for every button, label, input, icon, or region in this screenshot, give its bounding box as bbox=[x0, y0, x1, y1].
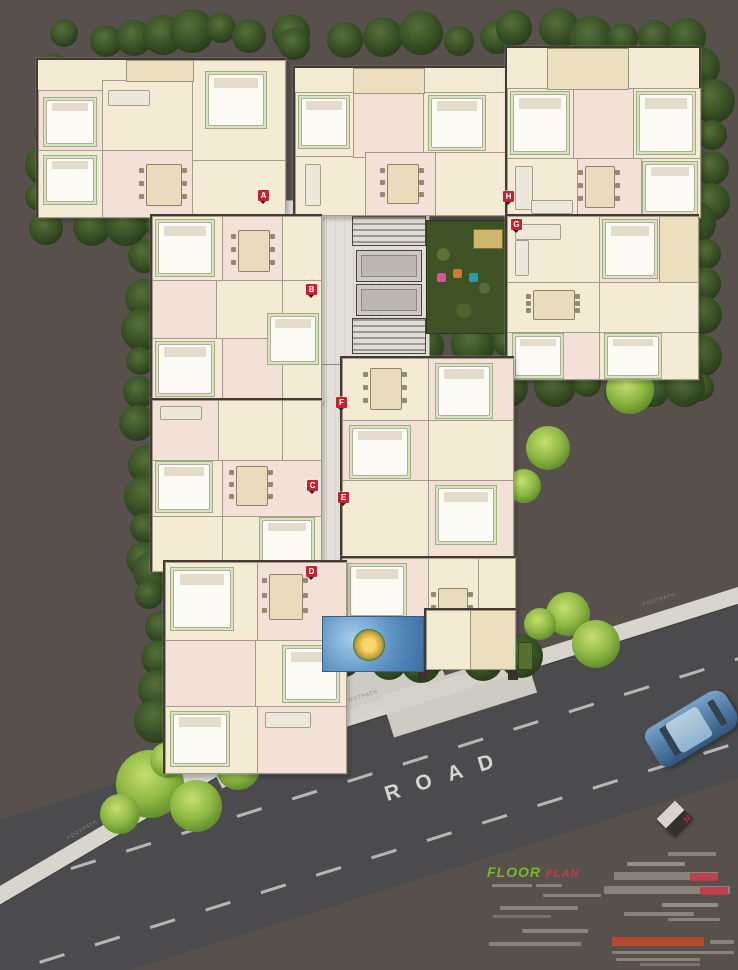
chair-icon bbox=[578, 183, 583, 188]
fine-print-text bbox=[522, 929, 588, 933]
block-marker-h: H bbox=[503, 191, 514, 202]
chair-icon bbox=[262, 593, 267, 598]
bed-icon bbox=[607, 336, 659, 376]
tree-icon bbox=[496, 10, 532, 46]
dining-table-icon bbox=[236, 466, 268, 506]
tree-icon bbox=[100, 794, 140, 834]
chair-icon bbox=[231, 247, 236, 252]
courtyard-planter bbox=[473, 229, 503, 249]
chair-icon bbox=[363, 398, 368, 403]
road-label: ROAD bbox=[382, 745, 513, 807]
bed-icon bbox=[438, 488, 494, 542]
footpath-label: FOOTPATH bbox=[642, 592, 677, 608]
bed-icon bbox=[46, 100, 94, 144]
chair-icon bbox=[182, 168, 187, 173]
caption-floor: FLOOR bbox=[487, 864, 541, 880]
apartment-block-3 bbox=[505, 46, 701, 218]
dining-table-icon bbox=[238, 230, 270, 272]
bed-icon bbox=[350, 566, 404, 616]
chair-icon bbox=[303, 608, 308, 613]
tree-icon bbox=[206, 13, 236, 43]
fine-print-text bbox=[493, 915, 551, 918]
fine-print-text bbox=[612, 951, 734, 954]
tree-icon bbox=[524, 608, 556, 640]
tree-icon bbox=[363, 17, 403, 57]
tree-icon bbox=[232, 19, 266, 53]
tree-icon bbox=[399, 11, 443, 55]
room bbox=[152, 280, 218, 340]
chair-icon bbox=[270, 247, 275, 252]
room bbox=[342, 480, 430, 562]
chair-icon bbox=[526, 308, 531, 313]
sofa-icon bbox=[531, 200, 573, 214]
lift-1 bbox=[356, 250, 422, 282]
chair-icon bbox=[262, 608, 267, 613]
tree-icon bbox=[327, 22, 363, 58]
tree-icon bbox=[572, 620, 620, 668]
chair-icon bbox=[468, 592, 473, 597]
apartment-block-4 bbox=[505, 214, 699, 380]
tree-icon bbox=[278, 28, 310, 60]
chair-icon bbox=[419, 192, 424, 197]
sofa-icon bbox=[265, 712, 311, 728]
chair-icon bbox=[575, 294, 580, 299]
chair-icon bbox=[268, 470, 273, 475]
lift-2 bbox=[356, 284, 422, 316]
bed-icon bbox=[262, 520, 312, 564]
chair-icon bbox=[615, 170, 620, 175]
tree-icon bbox=[135, 581, 163, 609]
bed-icon bbox=[173, 714, 227, 764]
chair-icon bbox=[363, 372, 368, 377]
play-item-teal bbox=[469, 273, 478, 282]
chair-icon bbox=[380, 168, 385, 173]
courtyard-garden bbox=[426, 220, 510, 334]
chair-icon bbox=[526, 301, 531, 306]
chair-icon bbox=[229, 470, 234, 475]
chair-icon bbox=[270, 260, 275, 265]
chair-icon bbox=[229, 482, 234, 487]
bed-icon bbox=[158, 344, 212, 394]
tree-icon bbox=[170, 780, 222, 832]
chair-icon bbox=[578, 170, 583, 175]
fine-print-text bbox=[489, 942, 581, 946]
chair-icon bbox=[615, 196, 620, 201]
bed-icon bbox=[639, 94, 693, 152]
chair-icon bbox=[419, 180, 424, 185]
gate-pillar-right bbox=[508, 670, 518, 680]
play-item-orange bbox=[453, 269, 462, 278]
apartment-block-7 bbox=[340, 356, 514, 562]
room bbox=[353, 92, 425, 158]
fine-print-text bbox=[492, 884, 532, 887]
chair-icon bbox=[262, 578, 267, 583]
bed-icon bbox=[605, 222, 655, 276]
fine-print-text bbox=[612, 937, 704, 946]
fine-print-text bbox=[662, 903, 718, 907]
block-marker-f: F bbox=[336, 397, 347, 408]
room bbox=[659, 216, 699, 284]
fine-print-text bbox=[536, 884, 562, 887]
room bbox=[573, 88, 635, 160]
chair-icon bbox=[575, 308, 580, 313]
block-marker-e: E bbox=[338, 492, 349, 503]
chair-icon bbox=[431, 592, 436, 597]
apartment-block-6 bbox=[150, 398, 322, 572]
fine-print-text bbox=[668, 918, 720, 921]
dining-table-icon bbox=[533, 290, 575, 320]
room bbox=[599, 282, 699, 334]
water-feature bbox=[322, 616, 424, 672]
tree-icon bbox=[50, 19, 78, 47]
fine-print-text bbox=[700, 887, 728, 895]
dining-table-icon bbox=[146, 164, 182, 206]
entrance-annex bbox=[424, 608, 516, 670]
fine-print-text bbox=[624, 912, 694, 916]
chair-icon bbox=[139, 181, 144, 186]
block-marker-a: A bbox=[258, 190, 269, 201]
dining-table-icon bbox=[370, 368, 402, 410]
play-item-pink bbox=[437, 273, 446, 282]
staircase-top bbox=[352, 216, 426, 246]
annex-room bbox=[426, 610, 472, 670]
dining-table-icon bbox=[269, 574, 303, 620]
block-marker-c: C bbox=[307, 480, 318, 491]
sofa-icon bbox=[108, 90, 150, 106]
chair-icon bbox=[526, 294, 531, 299]
apartment-block-1 bbox=[36, 58, 286, 218]
fountain bbox=[353, 629, 385, 661]
gate-planter-right bbox=[518, 642, 533, 670]
chair-icon bbox=[380, 192, 385, 197]
bed-icon bbox=[46, 158, 94, 202]
block-marker-b: B bbox=[306, 284, 317, 295]
bed-icon bbox=[645, 164, 695, 212]
bed-icon bbox=[173, 570, 231, 628]
chair-icon bbox=[363, 385, 368, 390]
chair-icon bbox=[615, 183, 620, 188]
chair-icon bbox=[303, 593, 308, 598]
bed-icon bbox=[513, 94, 567, 152]
caption-plan: PLAN bbox=[545, 868, 579, 880]
tree-icon bbox=[526, 426, 570, 470]
room bbox=[547, 48, 629, 90]
fine-print-text bbox=[616, 958, 700, 961]
room bbox=[353, 68, 425, 94]
fine-print-text bbox=[500, 906, 578, 910]
room bbox=[428, 420, 514, 482]
chair-icon bbox=[182, 181, 187, 186]
chair-icon bbox=[229, 494, 234, 499]
chair-icon bbox=[268, 482, 273, 487]
bed-icon bbox=[431, 98, 483, 148]
tree-icon bbox=[444, 26, 474, 56]
plan-caption: FLOOR PLAN bbox=[487, 864, 579, 882]
bed-icon bbox=[158, 464, 210, 510]
block-marker-d: D bbox=[306, 566, 317, 577]
chair-icon bbox=[402, 398, 407, 403]
room bbox=[165, 640, 257, 708]
dining-table-icon bbox=[387, 164, 419, 204]
staircase-bottom bbox=[352, 318, 426, 354]
fine-print-text bbox=[710, 940, 734, 944]
room bbox=[126, 60, 194, 82]
room bbox=[192, 160, 286, 218]
chair-icon bbox=[139, 194, 144, 199]
block-marker-g: G bbox=[511, 219, 522, 230]
chair-icon bbox=[578, 196, 583, 201]
chair-icon bbox=[182, 194, 187, 199]
bed-icon bbox=[158, 222, 212, 274]
fine-print-text bbox=[668, 852, 716, 856]
chair-icon bbox=[402, 385, 407, 390]
fine-print-text bbox=[627, 862, 685, 866]
chair-icon bbox=[231, 260, 236, 265]
dining-table-icon bbox=[585, 166, 615, 208]
room bbox=[282, 400, 322, 462]
chair-icon bbox=[270, 234, 275, 239]
fine-print-text bbox=[543, 894, 601, 897]
apartment-block-2 bbox=[293, 66, 509, 216]
bed-icon bbox=[270, 316, 316, 362]
chair-icon bbox=[231, 234, 236, 239]
room bbox=[218, 400, 284, 462]
sofa-icon bbox=[305, 164, 321, 206]
north-compass: N bbox=[662, 806, 688, 832]
apartment-block-9 bbox=[163, 560, 347, 774]
fine-print-text bbox=[690, 873, 718, 881]
room bbox=[435, 152, 509, 216]
chair-icon bbox=[380, 180, 385, 185]
chair-icon bbox=[575, 301, 580, 306]
chair-icon bbox=[402, 372, 407, 377]
room bbox=[282, 216, 322, 282]
tree-icon bbox=[697, 120, 727, 150]
apartment-block-5 bbox=[150, 214, 322, 402]
chair-icon bbox=[139, 168, 144, 173]
bed-icon bbox=[208, 74, 264, 126]
sofa-icon bbox=[160, 406, 202, 420]
chair-icon bbox=[268, 494, 273, 499]
chair-icon bbox=[419, 168, 424, 173]
sofa-icon bbox=[515, 240, 529, 276]
annex-room bbox=[470, 610, 516, 670]
bed-icon bbox=[352, 428, 408, 476]
fine-print-text bbox=[640, 963, 700, 966]
site-plan: ROAD FOOTPATHFOOTPATHFOOTPATHFOOTPATHFOO… bbox=[0, 0, 738, 970]
bed-icon bbox=[301, 98, 347, 146]
bed-icon bbox=[438, 366, 490, 416]
bed-icon bbox=[515, 336, 561, 376]
